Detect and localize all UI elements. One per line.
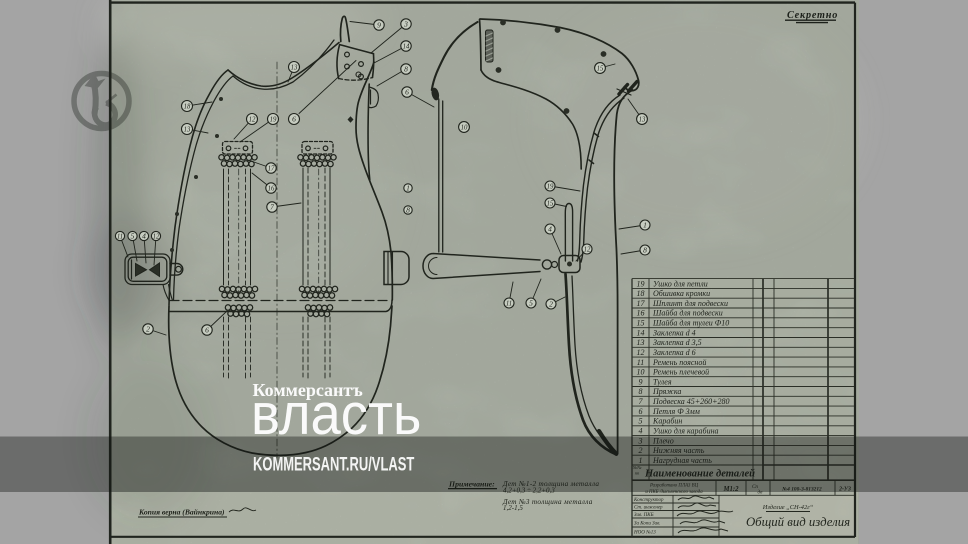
svg-text:2: 2 — [146, 324, 150, 333]
svg-text:8: 8 — [639, 387, 643, 396]
svg-text:7: 7 — [270, 202, 274, 211]
svg-text:Заклепка d 3,5: Заклепка d 3,5 — [653, 338, 702, 347]
svg-text:Ушко для петли: Ушко для петли — [653, 279, 708, 288]
svg-text:19: 19 — [637, 279, 645, 288]
svg-text:Общий вид изделия: Общий вид изделия — [746, 515, 850, 529]
svg-text:14: 14 — [637, 328, 645, 337]
svg-text:14: 14 — [403, 43, 410, 50]
svg-text:15: 15 — [597, 65, 604, 72]
svg-text:18: 18 — [637, 289, 645, 298]
svg-text:11: 11 — [117, 233, 123, 240]
svg-text:11: 11 — [637, 358, 644, 367]
svg-text:Ушко для карабина: Ушко для карабина — [653, 426, 719, 435]
svg-text:4: 4 — [548, 224, 552, 233]
svg-text:8: 8 — [406, 205, 410, 214]
svg-text:Петля Ф 3мм: Петля Ф 3мм — [652, 407, 700, 416]
svg-text:9: 9 — [377, 20, 381, 29]
svg-text:Шплинт для подвески: Шплинт для подвески — [652, 299, 728, 308]
svg-text:13: 13 — [184, 126, 191, 133]
svg-text:16: 16 — [268, 185, 275, 192]
svg-text:5: 5 — [639, 417, 643, 426]
svg-text:12: 12 — [249, 116, 256, 123]
svg-text:Пряжка: Пряжка — [652, 387, 681, 396]
svg-text:Заклепка d 4: Заклепка d 4 — [653, 328, 696, 337]
svg-text:2: 2 — [549, 299, 553, 308]
svg-text:Секретно: Секретно — [787, 10, 838, 21]
svg-text:13: 13 — [637, 338, 645, 347]
svg-text:19: 19 — [270, 116, 277, 123]
svg-text:13: 13 — [291, 64, 298, 71]
svg-text:Шайба для тулеи Ф10: Шайба для тулеи Ф10 — [652, 319, 729, 328]
svg-text:6: 6 — [292, 114, 296, 123]
svg-text:1,2-1,5: 1,2-1,5 — [503, 504, 523, 512]
svg-text:10: 10 — [461, 124, 468, 131]
svg-text:9: 9 — [639, 377, 643, 386]
svg-text:12: 12 — [153, 233, 160, 240]
svg-text:1: 1 — [406, 183, 410, 192]
svg-text:8: 8 — [404, 64, 408, 73]
svg-text:НОО №13: НОО №13 — [633, 530, 656, 536]
svg-text:Ремень плечевой: Ремень плечевой — [652, 368, 709, 377]
svg-text:6: 6 — [639, 407, 643, 416]
svg-text:Карабин: Карабин — [652, 417, 682, 426]
svg-text:6: 6 — [205, 325, 209, 334]
svg-text:Тулея: Тулея — [653, 377, 672, 386]
svg-text:6: 6 — [405, 87, 409, 96]
svg-text:1: 1 — [643, 220, 647, 229]
svg-text:5: 5 — [131, 231, 135, 240]
svg-text:12: 12 — [637, 348, 645, 357]
svg-text:18: 18 — [184, 103, 191, 110]
svg-text:16: 16 — [637, 309, 645, 318]
svg-text:12: 12 — [584, 246, 591, 253]
svg-text:13: 13 — [639, 116, 646, 123]
svg-text:8: 8 — [643, 245, 647, 254]
svg-text:4: 4 — [639, 426, 643, 435]
svg-text:Ремень поясной: Ремень поясной — [652, 358, 706, 367]
svg-text:3: 3 — [403, 19, 408, 28]
svg-text:Копия верна (Вайнкрина): Копия верна (Вайнкрина) — [138, 508, 225, 517]
svg-text:Подвеска 45+260+280: Подвеска 45+260+280 — [652, 397, 730, 406]
svg-text:5: 5 — [529, 298, 533, 307]
svg-text:15: 15 — [637, 319, 645, 328]
svg-text:Заклепка d 6: Заклепка d 6 — [653, 348, 696, 357]
svg-text:10: 10 — [637, 368, 645, 377]
svg-text:Конструктор: Конструктор — [633, 498, 664, 503]
svg-text:11: 11 — [506, 300, 512, 307]
svg-text:KOMMERSANT.RU/VLAST: KOMMERSANT.RU/VLAST — [253, 454, 414, 475]
svg-text:Изделие „СН-42г“: Изделие „СН-42г“ — [762, 504, 814, 511]
svg-text:4: 4 — [142, 231, 146, 240]
svg-text:19: 19 — [547, 183, 554, 190]
svg-text:За Копи Зав.: За Копи Зав. — [634, 522, 661, 527]
svg-text:17: 17 — [268, 165, 275, 172]
svg-text:Шайба для подвески: Шайба для подвески — [652, 309, 723, 318]
svg-text:Обшивка кромки: Обшивка кромки — [653, 289, 710, 298]
svg-text:Зав. ПКБ: Зав. ПКБ — [634, 513, 654, 518]
svg-text:17: 17 — [637, 299, 646, 308]
svg-text:Ст. инженер: Ст. инженер — [634, 506, 663, 511]
svg-text:15: 15 — [547, 200, 554, 207]
